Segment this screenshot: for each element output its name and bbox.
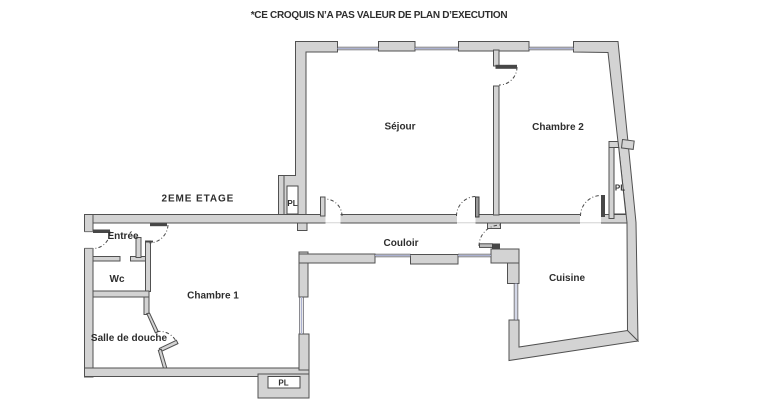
svg-text:*CE CROQUIS N’A PAS VALEUR DE: *CE CROQUIS N’A PAS VALEUR DE PLAN D’EXE… xyxy=(251,10,508,21)
svg-text:PL: PL xyxy=(615,184,625,193)
svg-text:2EME ETAGE: 2EME ETAGE xyxy=(162,194,235,205)
svg-text:Couloir: Couloir xyxy=(384,238,419,249)
svg-text:Salle de douche: Salle de douche xyxy=(91,333,168,344)
svg-text:Entrée: Entrée xyxy=(107,231,139,242)
svg-text:Chambre 1: Chambre 1 xyxy=(187,291,239,302)
svg-text:Cuisine: Cuisine xyxy=(549,273,586,284)
svg-text:Chambre 2: Chambre 2 xyxy=(532,122,584,133)
svg-text:Wc: Wc xyxy=(110,274,125,285)
svg-text:Séjour: Séjour xyxy=(384,122,415,133)
svg-text:PL: PL xyxy=(278,379,288,388)
svg-text:PL: PL xyxy=(287,199,297,208)
